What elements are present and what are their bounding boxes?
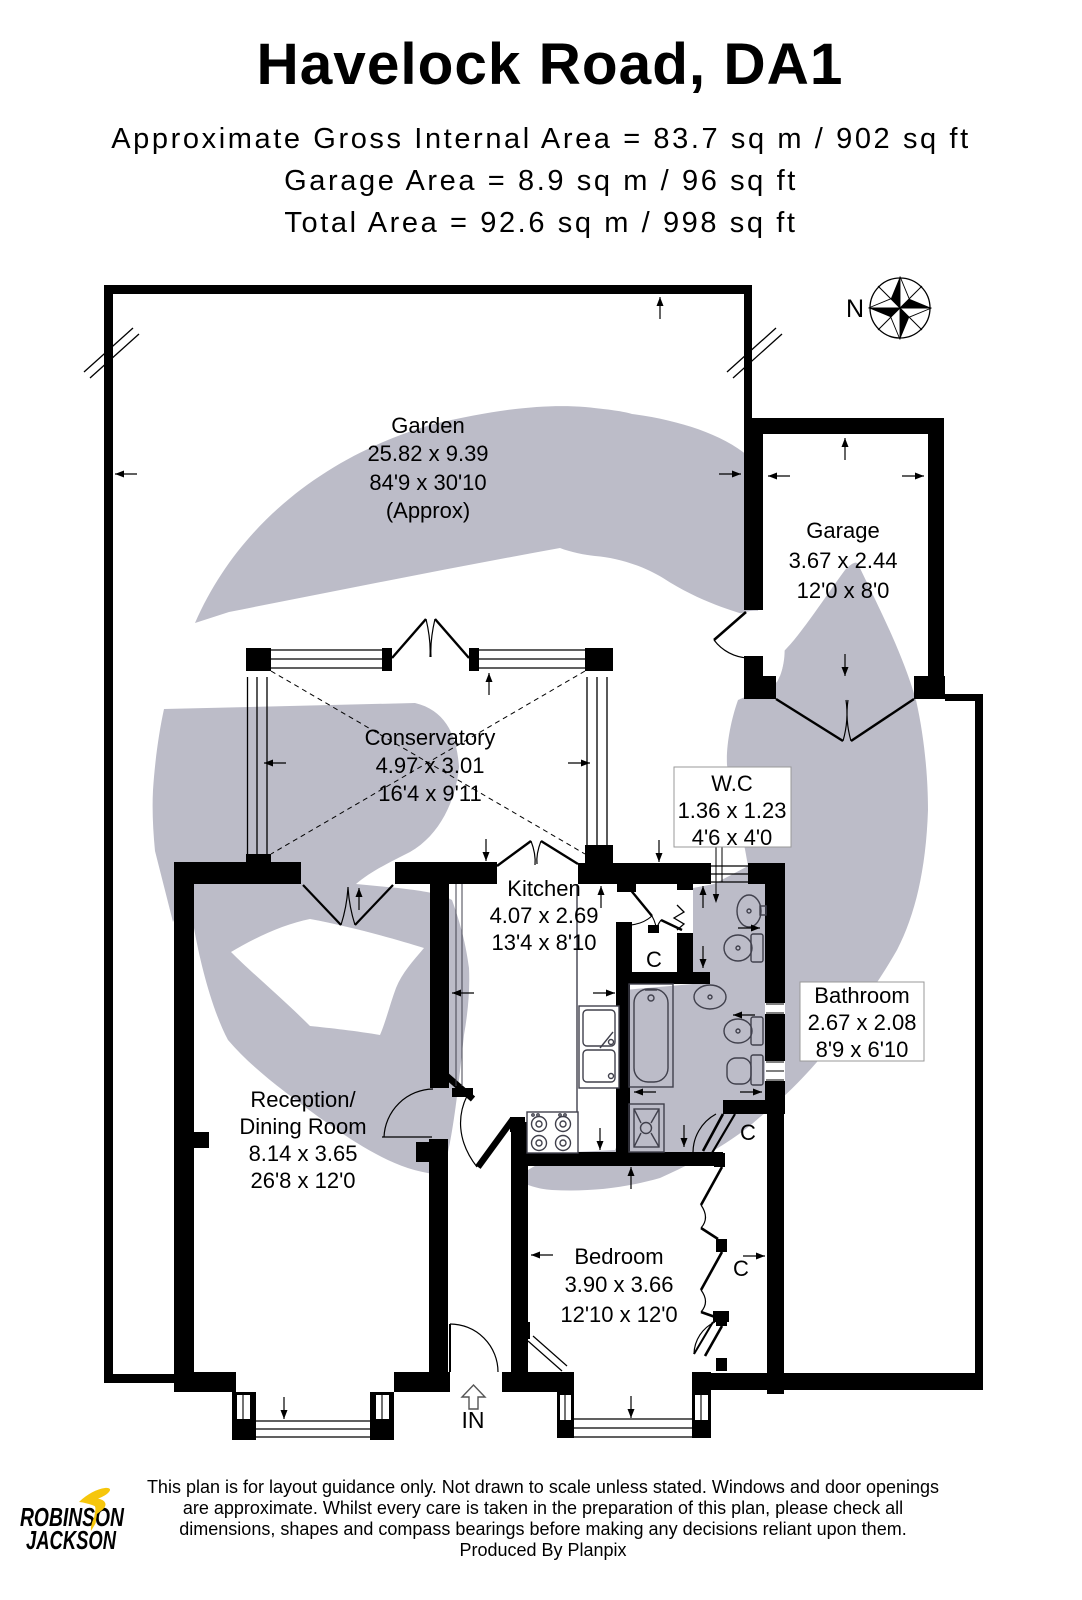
svg-text:12'0 x 8'0: 12'0 x 8'0 — [797, 578, 890, 603]
svg-text:Reception/: Reception/ — [250, 1087, 356, 1112]
svg-text:Garage: Garage — [806, 518, 879, 543]
svg-text:(Approx): (Approx) — [386, 498, 470, 523]
svg-text:Garage Area = 8.9 sq m / 96 sq: Garage Area = 8.9 sq m / 96 sq ft — [284, 165, 798, 197]
svg-text:C: C — [733, 1256, 749, 1281]
svg-text:Bathroom: Bathroom — [814, 983, 909, 1008]
svg-text:84'9 x 30'10: 84'9 x 30'10 — [369, 470, 486, 495]
svg-text:25.82 x 9.39: 25.82 x 9.39 — [367, 441, 488, 466]
svg-text:8'9 x 6'10: 8'9 x 6'10 — [816, 1037, 909, 1062]
svg-text:Dining Room: Dining Room — [239, 1114, 366, 1139]
svg-text:4.07 x 2.69: 4.07 x 2.69 — [490, 903, 599, 928]
svg-text:2.67 x 2.08: 2.67 x 2.08 — [808, 1010, 917, 1035]
svg-text:Total Area = 92.6 sq m / 998 s: Total Area = 92.6 sq m / 998 sq ft — [284, 207, 797, 239]
svg-text:This plan is for layout guidan: This plan is for layout guidance only. N… — [147, 1477, 939, 1497]
svg-text:Bedroom: Bedroom — [574, 1244, 663, 1269]
svg-text:Garden: Garden — [391, 413, 464, 438]
svg-text:are approximate. Whilst every: are approximate. Whilst every care is ta… — [183, 1498, 903, 1518]
svg-text:C: C — [740, 1120, 756, 1145]
svg-text:Conservatory: Conservatory — [365, 725, 496, 750]
svg-text:Havelock Road, DA1: Havelock Road, DA1 — [257, 32, 844, 97]
svg-text:1.36 x 1.23: 1.36 x 1.23 — [678, 798, 787, 823]
svg-text:Produced By Planpix: Produced By Planpix — [459, 1540, 626, 1560]
svg-text:W.C: W.C — [711, 771, 753, 796]
svg-text:13'4 x 8'10: 13'4 x 8'10 — [491, 930, 596, 955]
svg-text:C: C — [646, 947, 662, 972]
svg-text:8.14 x 3.65: 8.14 x 3.65 — [249, 1141, 358, 1166]
svg-text:12'10 x 12'0: 12'10 x 12'0 — [560, 1302, 677, 1327]
svg-text:Approximate Gross Internal Are: Approximate Gross Internal Area = 83.7 s… — [111, 123, 971, 155]
svg-text:3.90 x 3.66: 3.90 x 3.66 — [565, 1272, 674, 1297]
svg-text:4.97 x 3.01: 4.97 x 3.01 — [376, 753, 485, 778]
svg-text:dimensions, shapes and compass: dimensions, shapes and compass bearings … — [179, 1519, 906, 1539]
svg-text:26'8 x 12'0: 26'8 x 12'0 — [250, 1168, 355, 1193]
svg-text:JACKSON: JACKSON — [26, 1525, 117, 1555]
svg-text:16'4 x 9'11: 16'4 x 9'11 — [378, 781, 481, 806]
svg-text:Kitchen: Kitchen — [507, 876, 580, 901]
svg-text:N: N — [846, 295, 864, 323]
svg-text:4'6 x 4'0: 4'6 x 4'0 — [692, 825, 773, 850]
svg-text:3.67 x 2.44: 3.67 x 2.44 — [789, 548, 898, 573]
svg-text:IN: IN — [462, 1407, 485, 1433]
